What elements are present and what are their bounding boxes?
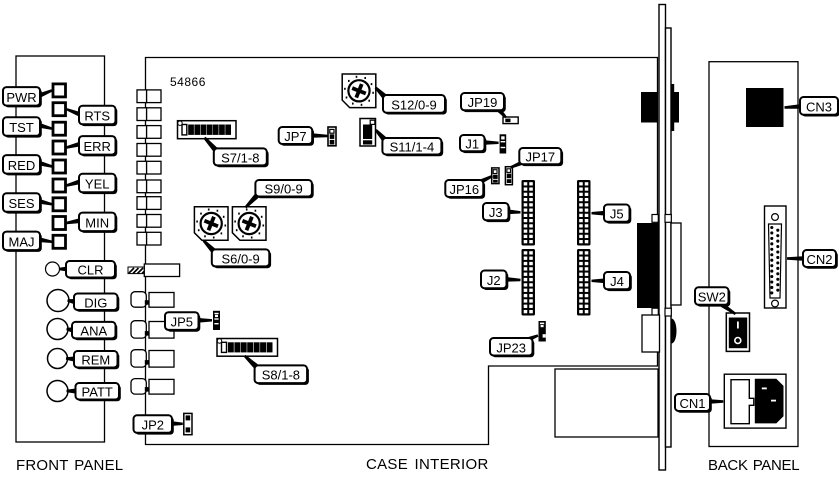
svg-text:S12/0-9: S12/0-9	[391, 97, 437, 112]
svg-text:YEL: YEL	[85, 177, 110, 192]
svg-text:PWR: PWR	[6, 90, 36, 105]
svg-text:BACK PANEL: BACK PANEL	[708, 457, 799, 474]
svg-text:JP7: JP7	[284, 129, 306, 144]
svg-text:J4: J4	[610, 274, 624, 289]
svg-text:SES: SES	[8, 196, 34, 211]
svg-text:54866: 54866	[170, 75, 206, 89]
svg-text:ERR: ERR	[83, 139, 110, 154]
svg-text:JP16: JP16	[449, 182, 479, 197]
svg-text:J3: J3	[489, 205, 503, 220]
svg-text:REM: REM	[81, 353, 110, 368]
svg-text:CN3: CN3	[806, 99, 832, 114]
svg-text:J2: J2	[487, 273, 501, 288]
svg-text:DIG: DIG	[84, 295, 107, 310]
svg-text:S6/0-9: S6/0-9	[221, 251, 259, 266]
svg-text:J1: J1	[465, 137, 479, 152]
svg-text:J5: J5	[610, 207, 624, 222]
svg-text:PATT: PATT	[82, 385, 113, 400]
svg-text:JP17: JP17	[525, 150, 555, 165]
svg-text:CN2: CN2	[806, 252, 832, 267]
svg-text:JP2: JP2	[142, 418, 164, 433]
svg-text:RTS: RTS	[84, 109, 110, 124]
svg-text:JP23: JP23	[496, 340, 526, 355]
svg-text:JP19: JP19	[468, 95, 498, 110]
svg-text:FRONT PANEL: FRONT PANEL	[16, 457, 123, 474]
svg-text:MIN: MIN	[85, 215, 109, 230]
svg-text:S11/1-4: S11/1-4	[390, 140, 435, 155]
svg-text:CASE INTERIOR: CASE INTERIOR	[366, 456, 489, 473]
svg-text:RED: RED	[8, 158, 35, 173]
svg-text:CN1: CN1	[679, 396, 705, 411]
svg-text:S8/1-8: S8/1-8	[262, 368, 300, 383]
svg-text:TST: TST	[9, 120, 34, 135]
svg-text:JP5: JP5	[171, 315, 193, 330]
svg-text:MAJ: MAJ	[9, 234, 35, 249]
svg-text:S7/1-8: S7/1-8	[221, 150, 259, 165]
svg-text:CLR: CLR	[77, 263, 103, 278]
svg-text:SW2: SW2	[698, 290, 726, 305]
svg-text:S9/0-9: S9/0-9	[264, 182, 302, 197]
svg-text:ANA: ANA	[80, 324, 107, 339]
